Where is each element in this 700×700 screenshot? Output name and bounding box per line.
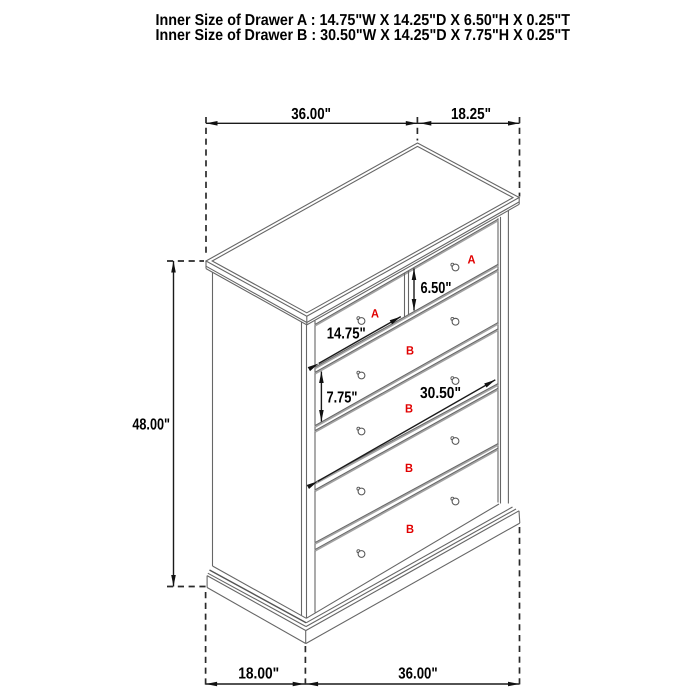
svg-text:B: B <box>406 343 414 357</box>
svg-text:36.00": 36.00" <box>398 666 437 683</box>
svg-text:B: B <box>405 461 413 475</box>
svg-text:B: B <box>405 401 413 415</box>
svg-text:A: A <box>371 307 379 321</box>
svg-text:48.00": 48.00" <box>132 417 170 434</box>
svg-text:30.50": 30.50" <box>420 385 461 402</box>
svg-text:14.75": 14.75" <box>327 326 366 343</box>
svg-text:18.25": 18.25" <box>451 106 491 123</box>
svg-text:Inner Size of Drawer B : 30.50: Inner Size of Drawer B : 30.50"W X 14.25… <box>156 27 571 44</box>
svg-text:B: B <box>406 522 414 536</box>
svg-text:A: A <box>468 252 476 266</box>
svg-text:18.00": 18.00" <box>238 666 279 683</box>
svg-text:6.50": 6.50" <box>421 280 452 297</box>
svg-text:36.00": 36.00" <box>291 106 331 123</box>
svg-text:7.75": 7.75" <box>327 390 358 407</box>
